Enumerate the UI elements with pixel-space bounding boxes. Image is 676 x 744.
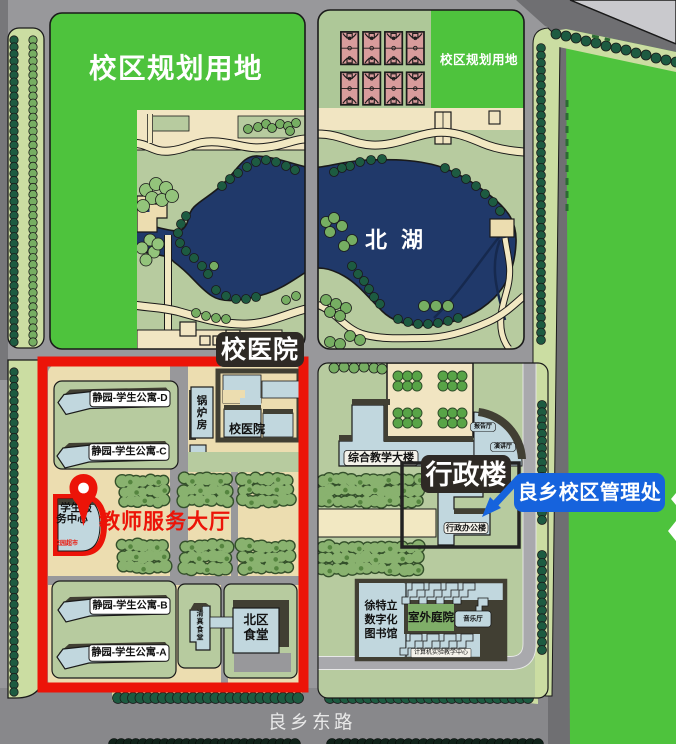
svg-text:静园-学生公寓-A: 静园-学生公寓-A bbox=[91, 646, 167, 659]
svg-text:行政楼: 行政楼 bbox=[425, 459, 507, 490]
svg-text:房: 房 bbox=[197, 418, 208, 431]
svg-text:静园-学生公寓-D: 静园-学生公寓-D bbox=[92, 391, 167, 404]
svg-text:校园超市: 校园超市 bbox=[54, 539, 78, 547]
svg-text:音乐厅: 音乐厅 bbox=[463, 614, 483, 623]
svg-text:行政办公楼: 行政办公楼 bbox=[445, 523, 486, 533]
svg-text:良乡东路: 良乡东路 bbox=[268, 712, 356, 733]
svg-text:静园-学生公寓-C: 静园-学生公寓-C bbox=[91, 445, 167, 458]
svg-text:室外庭院: 室外庭院 bbox=[408, 610, 454, 624]
svg-text:计算机实验教学中心: 计算机实验教学中心 bbox=[414, 648, 468, 656]
svg-text:徐特立: 徐特立 bbox=[364, 598, 398, 612]
svg-text:北区: 北区 bbox=[243, 612, 269, 627]
svg-text:北 湖: 北 湖 bbox=[365, 228, 427, 253]
svg-text:真: 真 bbox=[197, 617, 204, 626]
svg-text:食堂: 食堂 bbox=[242, 627, 268, 642]
svg-text:堂: 堂 bbox=[197, 633, 204, 642]
svg-text:清: 清 bbox=[197, 609, 204, 618]
svg-text:图书馆: 图书馆 bbox=[365, 626, 398, 640]
svg-text:食: 食 bbox=[196, 625, 205, 634]
svg-text:校医院: 校医院 bbox=[229, 421, 265, 436]
svg-text:静园-学生公寓-B: 静园-学生公寓-B bbox=[92, 599, 167, 612]
svg-text:良乡校区管理处: 良乡校区管理处 bbox=[518, 480, 662, 504]
svg-text:数字化: 数字化 bbox=[365, 612, 398, 626]
svg-text:报告厅: 报告厅 bbox=[474, 422, 492, 430]
svg-text:锅: 锅 bbox=[197, 394, 208, 407]
svg-text:教师服务大厅: 教师服务大厅 bbox=[99, 510, 231, 534]
svg-text:校区规划用地: 校区规划用地 bbox=[89, 53, 263, 84]
svg-text:校医院: 校医院 bbox=[221, 335, 299, 364]
svg-text:校区规划用地: 校区规划用地 bbox=[440, 52, 518, 67]
svg-text:演讲厅: 演讲厅 bbox=[494, 442, 512, 450]
svg-text:炉: 炉 bbox=[197, 406, 208, 419]
